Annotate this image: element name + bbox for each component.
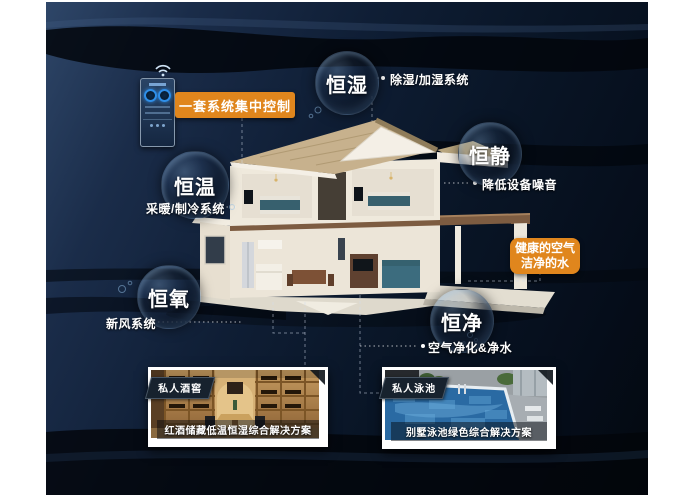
annotation-dehumidify: 除湿/加湿系统 [390, 71, 469, 88]
wine-cellar-card: 私人酒窖 红酒储藏低温恒湿综合解决方案 [148, 367, 328, 447]
pool-caption: 别墅泳池绿色综合解决方案 [391, 422, 547, 441]
pool-card: 私人泳池 别墅泳池绿色综合解决方案 [382, 367, 556, 449]
annotation-fresh-air: 新风系统 [106, 315, 156, 332]
panel-dot [156, 124, 159, 127]
healthy-air-tag: 健康的空气 洁净的水 [510, 238, 580, 274]
panel-dial-left [144, 89, 157, 102]
interior-wall [336, 228, 346, 292]
panel-dot [150, 124, 153, 127]
poster-background: 一套系统集中控制 健康的空气 洁净的水 恒湿 恒静 恒温 恒氧 恒净 除湿/加湿… [46, 2, 648, 495]
bedroom-right [352, 169, 434, 216]
panel-dot [162, 124, 165, 127]
panel-dial-right [158, 89, 171, 102]
central-control-tag: 一套系统集中控制 [175, 92, 295, 118]
smart-control-panel [140, 78, 175, 147]
panel-row [145, 112, 170, 114]
wifi-icon [154, 62, 172, 77]
kitchen-interior [242, 240, 282, 290]
bubble-humidity: 恒湿 [315, 51, 379, 115]
annotation-noise: 降低设备噪音 [482, 176, 557, 193]
pool-badge: 私人泳池 [379, 377, 449, 399]
annex-window [205, 236, 225, 264]
wine-cellar-caption: 红酒储藏低温恒湿综合解决方案 [157, 420, 319, 439]
wine-cellar-badge: 私人酒窖 [145, 377, 215, 399]
healthy-air-line1: 健康的空气 [515, 241, 575, 256]
panel-divider [143, 119, 172, 120]
panel-header-bar [149, 83, 166, 86]
card-corner-ribbon [310, 370, 325, 385]
bedroom-left [242, 174, 312, 218]
card-corner-ribbon [538, 370, 553, 385]
annotation-hvac: 采暖/制冷系统 [146, 200, 225, 217]
healthy-air-line2: 洁净的水 [521, 256, 569, 271]
porch-column [455, 226, 461, 284]
upper-hallway [318, 172, 346, 220]
panel-row [145, 106, 170, 108]
annotation-purification: 空气净化&净水 [428, 339, 512, 356]
central-control-label: 一套系统集中控制 [179, 96, 291, 115]
poster-stage: 一套系统集中控制 健康的空气 洁净的水 恒湿 恒静 恒温 恒氧 恒净 除湿/加湿… [0, 0, 700, 497]
